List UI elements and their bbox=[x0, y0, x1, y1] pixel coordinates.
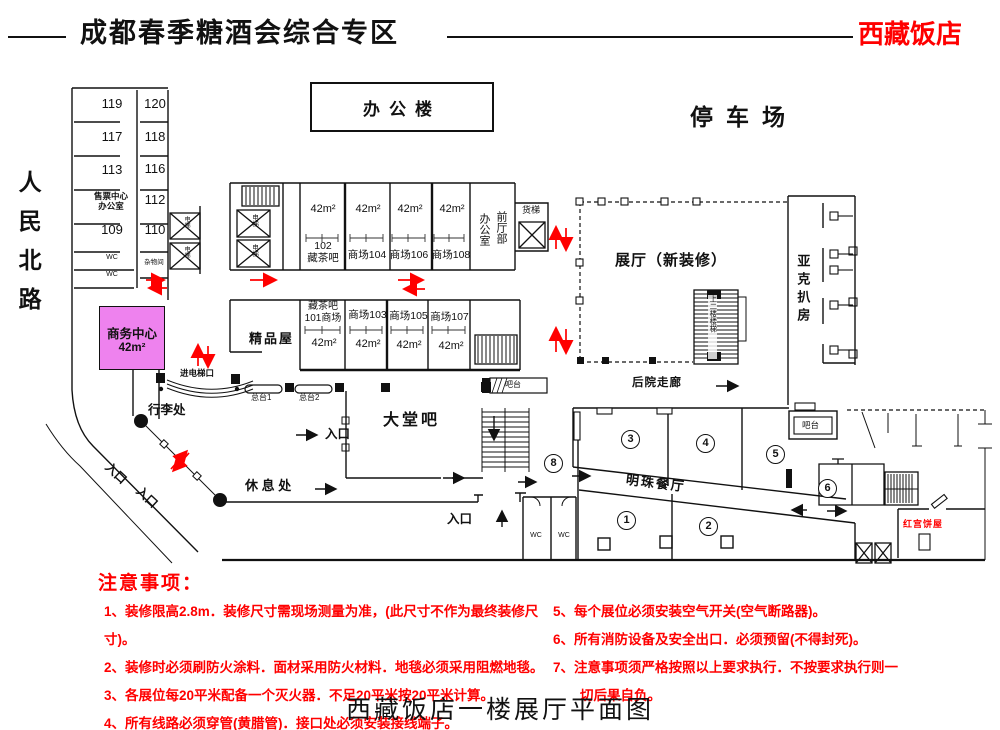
elevator-label-3: 电梯 bbox=[250, 214, 258, 236]
black-flow-arrows bbox=[296, 386, 845, 527]
booth-106-label: 商场106 bbox=[387, 249, 431, 261]
room-116: 116 bbox=[140, 161, 170, 176]
lobby-bar-label: 大堂吧 bbox=[383, 412, 440, 431]
entrance-label-mid: 入口 bbox=[325, 427, 350, 442]
business-center-area: 42m² bbox=[119, 342, 146, 354]
wc-label-2: WC bbox=[100, 271, 124, 279]
elevators bbox=[170, 210, 891, 563]
wc-label-1: WC bbox=[100, 254, 124, 262]
room-110: 110 bbox=[140, 222, 170, 237]
street-name: 人民北路 bbox=[14, 170, 41, 355]
zone-badge-1: 1 bbox=[617, 511, 636, 530]
zone-badge-2: 2 bbox=[699, 517, 718, 536]
booth-102-area: 42m² bbox=[302, 203, 344, 216]
zone-columns bbox=[598, 536, 733, 550]
booth-105-area: 42m² bbox=[387, 339, 431, 352]
ticket-office-label: 售票中心 办公室 bbox=[86, 191, 136, 211]
elevator-label-1: 电梯 bbox=[182, 216, 189, 237]
wc-label-3: WC bbox=[524, 532, 548, 540]
booth-108-area: 42m² bbox=[430, 203, 474, 216]
luggage-label: 行李处 bbox=[148, 403, 186, 418]
exhibition-hall-label: 展厅（新装修） bbox=[615, 252, 727, 270]
boutique-label: 精品屋 bbox=[249, 331, 294, 346]
header-rule-right bbox=[447, 36, 853, 38]
notes-title: 注意事项： bbox=[98, 570, 203, 598]
storage-room-label: 杂物间 bbox=[141, 259, 167, 267]
bar-counter-label-2: 吧台 bbox=[802, 420, 819, 430]
exhibition-corner-markers bbox=[574, 198, 700, 440]
front-office-label-left: 办公室 bbox=[477, 213, 490, 255]
zone-badge-8: 8 bbox=[544, 454, 563, 473]
parking-lot-label: 停车场 bbox=[690, 104, 798, 131]
floorplan-page: 成都春季糖酒会综合专区 西藏饭店 人民北路 办公楼 停车场 119 117 11… bbox=[0, 0, 1000, 730]
yake-grill-label: 亚克扒房 bbox=[795, 254, 810, 332]
room-117: 117 bbox=[94, 129, 130, 144]
zone-badge-4: 4 bbox=[696, 434, 715, 453]
red-palace-bakery-label: 红宫饼屋 bbox=[903, 519, 943, 530]
zone-badge-5: 5 bbox=[766, 445, 785, 464]
booth-101-area: 42m² bbox=[302, 337, 346, 350]
booth-107-area: 42m² bbox=[429, 340, 473, 353]
office-building-box: 办公楼 bbox=[310, 82, 494, 132]
stairs-to-2f-label: 上二楼楼梯 bbox=[708, 295, 717, 359]
booth-108-label: 商场108 bbox=[429, 249, 473, 261]
hotel-name: 西藏饭店 bbox=[858, 19, 962, 50]
booth-107-label: 商场107 bbox=[428, 311, 471, 323]
elevator-entrance-label: 进电梯口 bbox=[180, 368, 214, 378]
wc-label-4: WC bbox=[552, 532, 576, 540]
east-wing-fittings bbox=[789, 212, 947, 550]
room-113: 113 bbox=[94, 162, 130, 177]
footer-title: 西藏饭店一楼展厅平面图 bbox=[0, 690, 1000, 726]
front-office-label-right: 前厅部 bbox=[494, 211, 507, 253]
booth-106-area: 42m² bbox=[388, 203, 432, 216]
freight-elevator-label: 货梯 bbox=[516, 205, 546, 216]
page-title: 成都春季糖酒会综合专区 bbox=[80, 18, 399, 50]
elevator-label-4: 电梯 bbox=[250, 244, 258, 266]
front-desk-2-label: 总台2 bbox=[299, 393, 319, 402]
room-112: 112 bbox=[140, 192, 170, 207]
booth-103-label: 商场103 bbox=[346, 309, 389, 321]
booth-104-area: 42m² bbox=[346, 203, 390, 216]
front-desk-1-label: 总台1 bbox=[251, 393, 271, 402]
rest-area-label: 休 息 处 bbox=[245, 478, 291, 493]
header-rule-left bbox=[8, 36, 66, 38]
office-building-label: 办公楼 bbox=[363, 95, 441, 120]
entrance-label-south: 入口 bbox=[447, 512, 472, 527]
room-119: 119 bbox=[94, 96, 130, 111]
zone-badge-3: 3 bbox=[621, 430, 640, 449]
booth-105-label: 商场105 bbox=[387, 310, 430, 322]
room-118: 118 bbox=[140, 129, 170, 144]
booth-101-label: 藏茶吧 101商场 bbox=[299, 301, 347, 325]
walls bbox=[46, 88, 992, 563]
booth-103-area: 42m² bbox=[346, 338, 390, 351]
zone-badge-6: 6 bbox=[818, 479, 837, 498]
room-120: 120 bbox=[140, 96, 170, 111]
exhibition-column-markers bbox=[577, 357, 792, 488]
elevator-label-2: 电梯 bbox=[182, 246, 189, 267]
business-center-box: 商务中心 42m² bbox=[99, 306, 165, 370]
backyard-corridor-label: 后院走廊 bbox=[632, 377, 682, 391]
bar-counter-label-1: 吧台 bbox=[505, 380, 521, 389]
booth-104-label: 商场104 bbox=[345, 249, 389, 261]
business-center-label: 商务中心 bbox=[107, 323, 157, 342]
booth-102-label: 102 藏茶吧 bbox=[300, 240, 346, 265]
room-109: 109 bbox=[94, 222, 130, 237]
